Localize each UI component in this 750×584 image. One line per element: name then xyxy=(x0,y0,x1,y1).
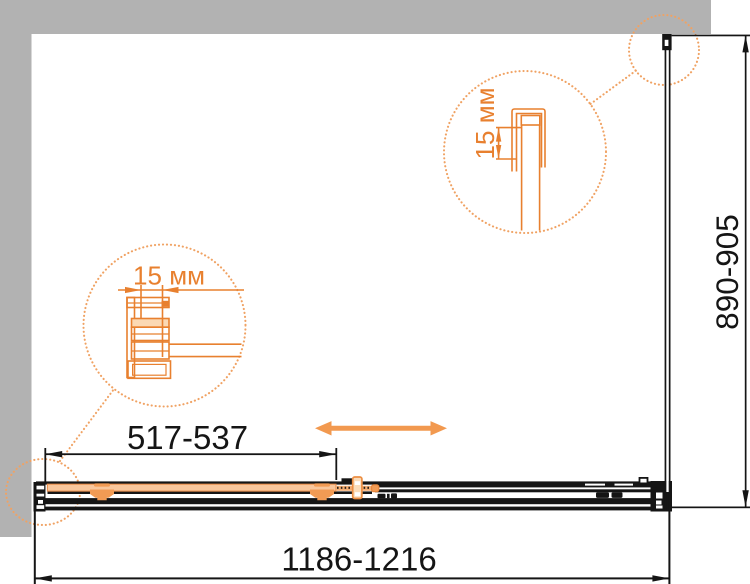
svg-text:15 мм: 15 мм xyxy=(470,88,500,160)
svg-text:517-537: 517-537 xyxy=(127,419,248,456)
svg-text:890-905: 890-905 xyxy=(709,214,745,330)
svg-text:1186-1216: 1186-1216 xyxy=(281,541,436,578)
svg-text:15 мм: 15 мм xyxy=(133,261,205,291)
